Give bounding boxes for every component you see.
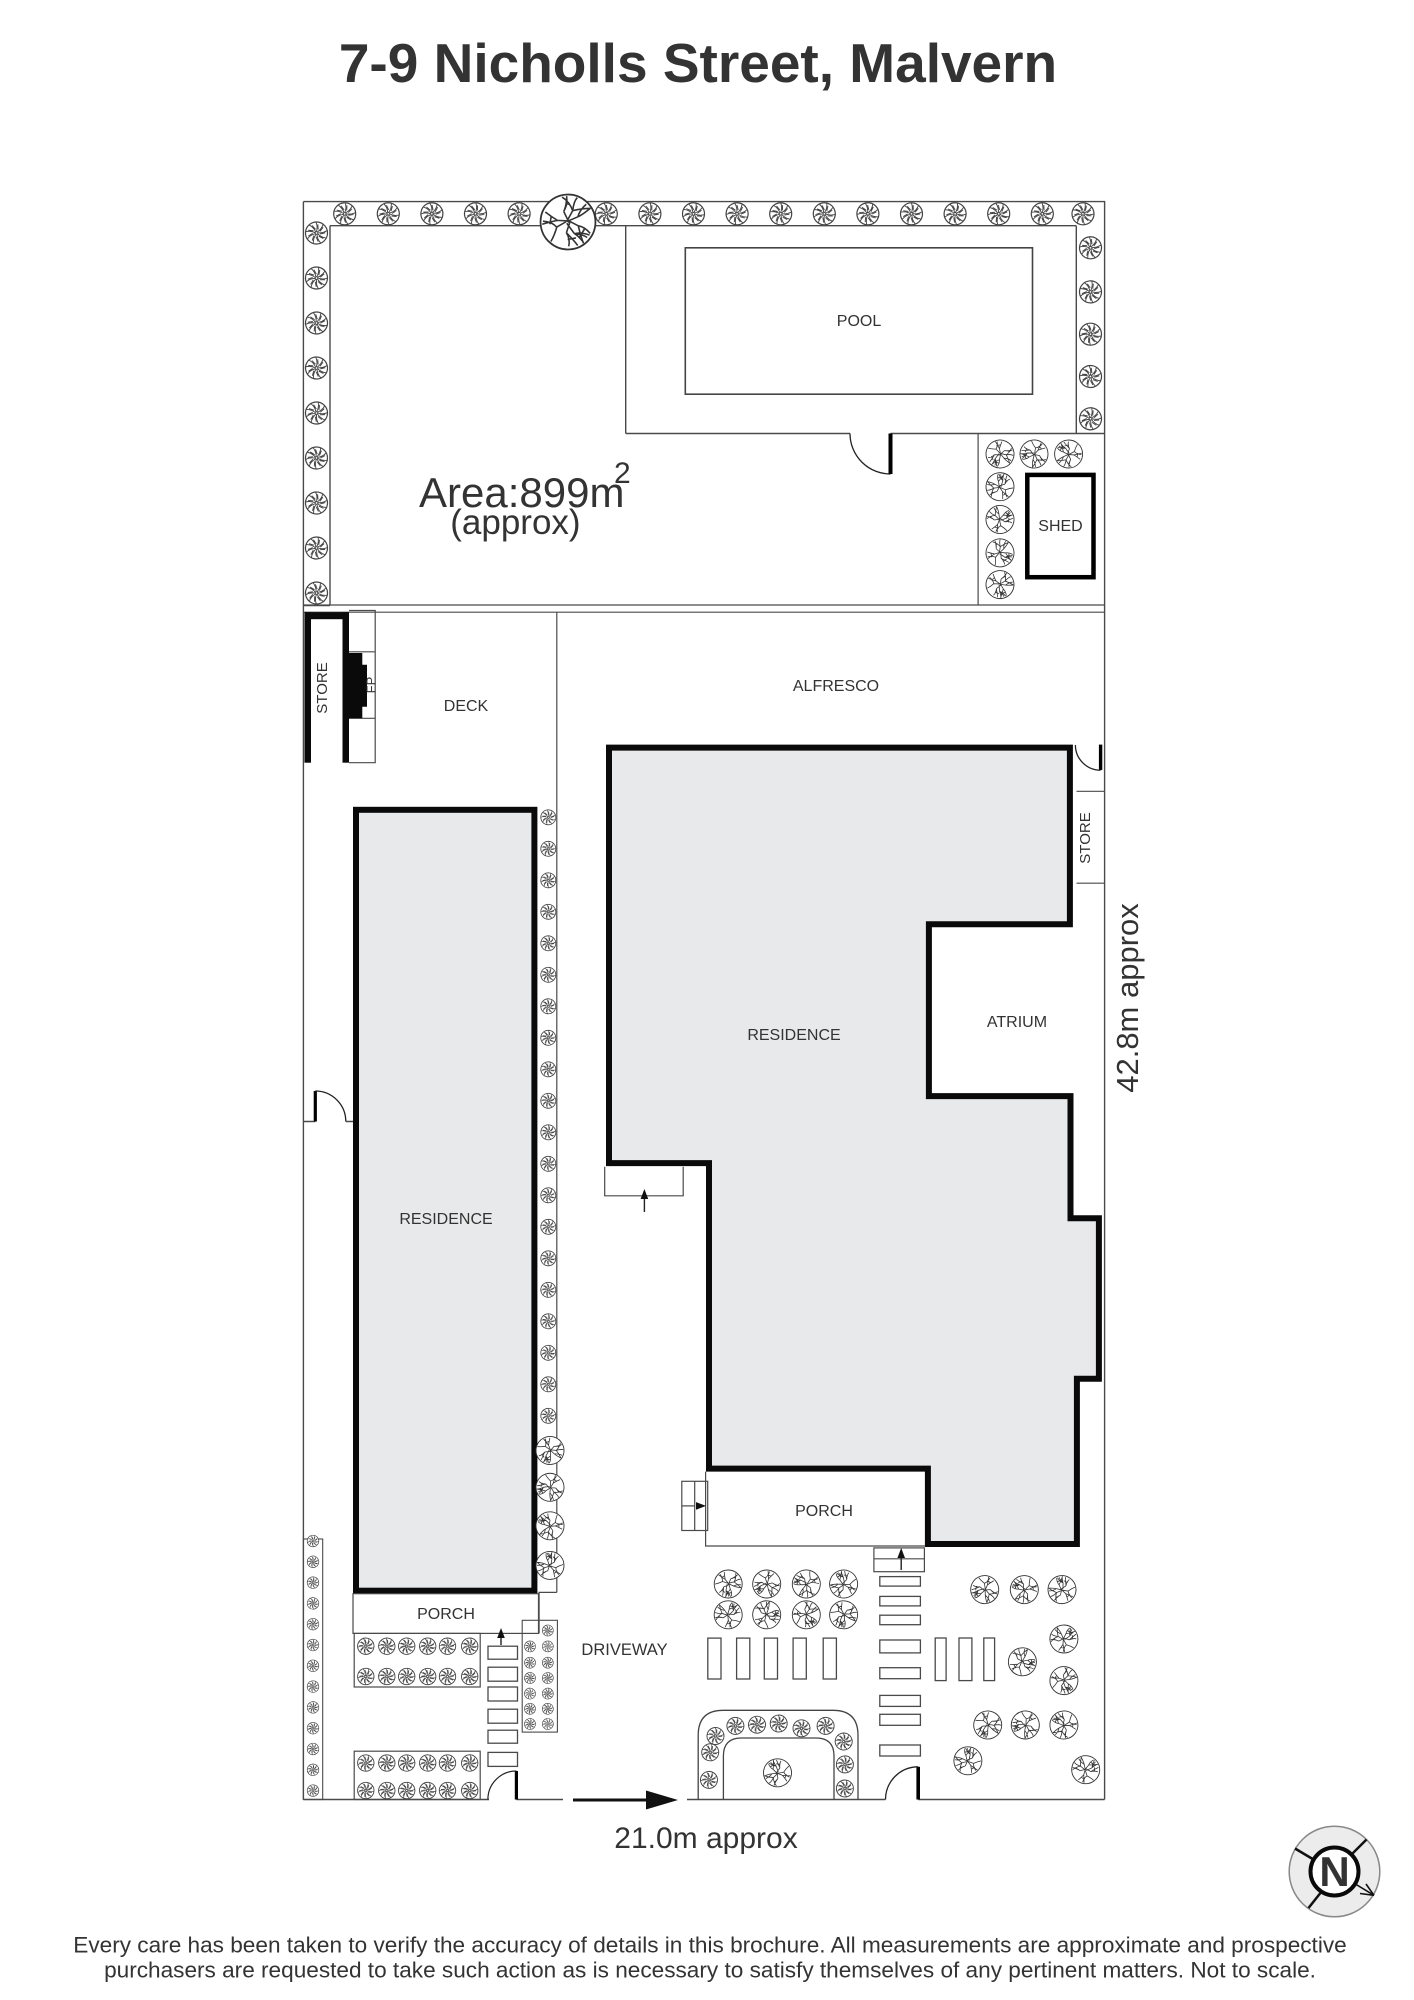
svg-text:DECK: DECK <box>444 698 489 715</box>
svg-text:21.0m approx: 21.0m approx <box>614 1822 797 1855</box>
svg-text:PORCH: PORCH <box>795 1503 853 1520</box>
svg-text:7-9 Nicholls Street, Malvern: 7-9 Nicholls Street, Malvern <box>339 32 1057 94</box>
svg-text:(approx): (approx) <box>450 503 580 542</box>
svg-text:POOL: POOL <box>837 313 882 330</box>
svg-text:SHED: SHED <box>1038 518 1082 535</box>
svg-text:ATRIUM: ATRIUM <box>987 1014 1047 1031</box>
svg-text:Every care has been taken to v: Every care has been taken to verify the … <box>73 1933 1346 1958</box>
svg-text:purchasers are requested to ta: purchasers are requested to take such ac… <box>104 1958 1316 1983</box>
svg-text:STORE: STORE <box>1077 812 1094 863</box>
svg-text:DRIVEWAY: DRIVEWAY <box>581 1641 667 1659</box>
svg-text:2: 2 <box>614 457 631 490</box>
svg-text:42.8m approx: 42.8m approx <box>1110 903 1145 1093</box>
svg-text:ALFRESCO: ALFRESCO <box>793 678 879 695</box>
svg-text:FP: FP <box>364 677 379 694</box>
svg-text:PORCH: PORCH <box>417 1606 475 1623</box>
svg-text:RESIDENCE: RESIDENCE <box>747 1027 840 1044</box>
svg-text:RESIDENCE: RESIDENCE <box>399 1211 492 1228</box>
svg-text:N: N <box>1319 1848 1349 1895</box>
svg-text:STORE: STORE <box>314 662 331 713</box>
